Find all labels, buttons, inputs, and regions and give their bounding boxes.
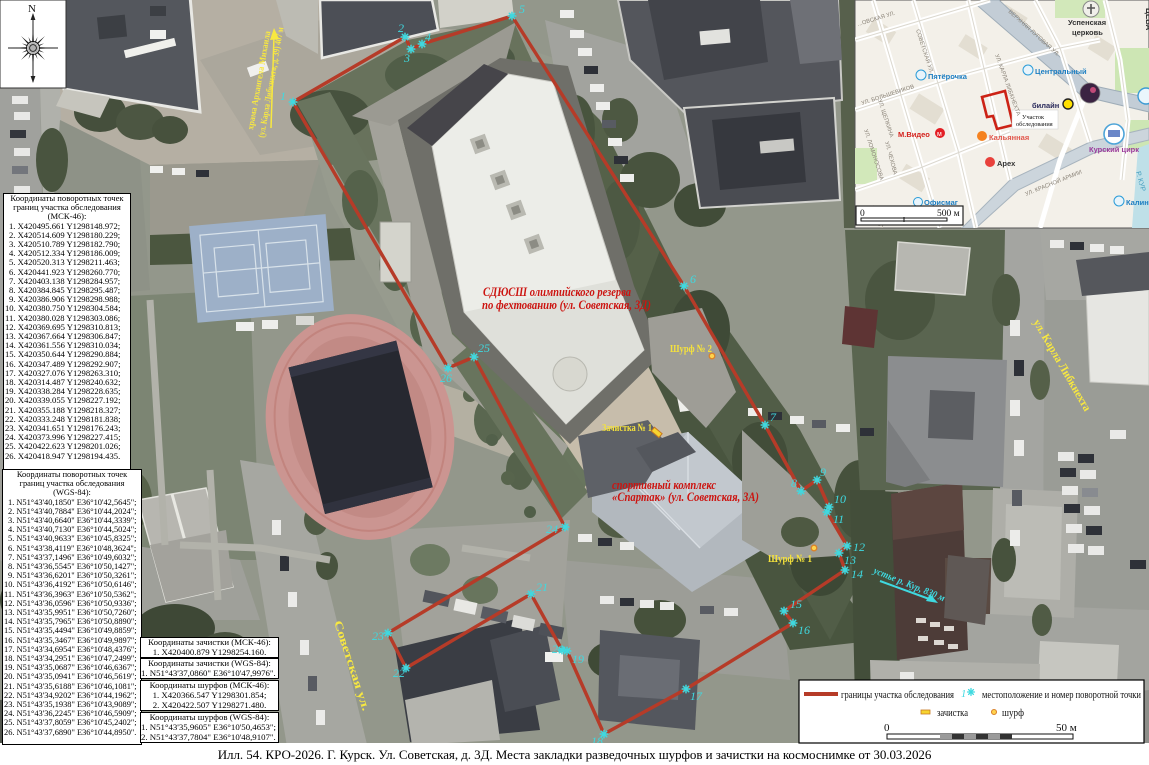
svg-text:м: м <box>937 131 942 138</box>
svg-text:шурф: шурф <box>1002 707 1024 719</box>
svg-text:6: 6 <box>690 272 696 286</box>
svg-text:25: 25 <box>478 341 490 355</box>
svg-text:М.Видео: М.Видео <box>898 130 930 139</box>
svg-text:Центральный: Центральный <box>1035 67 1087 76</box>
svg-text:9: 9 <box>820 465 826 479</box>
svg-text:Курский цирк: Курский цирк <box>1089 145 1139 154</box>
svg-text:границы участка обследования: границы участка обследования <box>841 689 954 701</box>
svg-text:26: 26 <box>440 371 452 385</box>
svg-text:обследования: обследования <box>1016 121 1053 128</box>
svg-text:11: 11 <box>833 512 844 526</box>
svg-text:«Спартак» (ул. Советская, 3А): «Спартак» (ул. Советская, 3А) <box>612 490 759 504</box>
svg-text:24: 24 <box>546 522 558 536</box>
svg-text:Зачистка № 1: Зачистка № 1 <box>602 422 652 434</box>
svg-text:8: 8 <box>791 476 797 490</box>
svg-text:Кальянная: Кальянная <box>989 133 1029 142</box>
svg-text:1: 1 <box>280 89 286 103</box>
svg-text:Пятёрочка: Пятёрочка <box>928 72 968 81</box>
svg-text:N: N <box>28 3 36 15</box>
svg-text:по фехтованию (ул. Советская,: по фехтованию (ул. Советская, 3Д) <box>482 298 651 312</box>
svg-text:14: 14 <box>851 567 863 581</box>
svg-text:1: 1 <box>961 689 966 700</box>
svg-text:Apex: Apex <box>997 159 1016 168</box>
svg-text:4: 4 <box>425 30 431 44</box>
svg-text:22: 22 <box>393 666 405 680</box>
svg-text:5: 5 <box>519 2 525 16</box>
svg-text:0: 0 <box>884 722 890 734</box>
svg-text:21: 21 <box>536 580 548 594</box>
svg-text:7: 7 <box>770 410 777 424</box>
svg-text:Успенская: Успенская <box>1068 18 1106 27</box>
svg-text:16: 16 <box>798 623 810 637</box>
svg-text:Шурф № 1: Шурф № 1 <box>768 553 812 565</box>
svg-text:15: 15 <box>790 597 802 611</box>
svg-text:17: 17 <box>690 689 703 703</box>
svg-text:23: 23 <box>372 629 384 643</box>
svg-text:Калина: Калина <box>1126 198 1149 207</box>
svg-text:50 м: 50 м <box>1056 722 1077 734</box>
svg-text:19: 19 <box>572 652 584 666</box>
svg-text:зачистка: зачистка <box>937 707 968 719</box>
svg-text:10: 10 <box>834 492 846 506</box>
svg-text:13: 13 <box>844 553 856 567</box>
svg-text:Шурф № 2: Шурф № 2 <box>670 343 712 355</box>
svg-text:Участок: Участок <box>1022 114 1045 121</box>
svg-text:местоположение и номер поворот: местоположение и номер поворотной точки <box>982 689 1141 701</box>
svg-text:2: 2 <box>398 21 404 35</box>
svg-text:церковь: церковь <box>1072 28 1103 37</box>
svg-text:билайн: билайн <box>1032 101 1059 110</box>
svg-text:3: 3 <box>403 51 410 65</box>
svg-text:12: 12 <box>853 540 865 554</box>
svg-text:СДЮСШ олимпийского резерва: СДЮСШ олимпийского резерва <box>483 285 631 299</box>
svg-text:ЦЕВА: ЦЕВА <box>1144 8 1149 31</box>
svg-text:20: 20 <box>552 642 564 656</box>
